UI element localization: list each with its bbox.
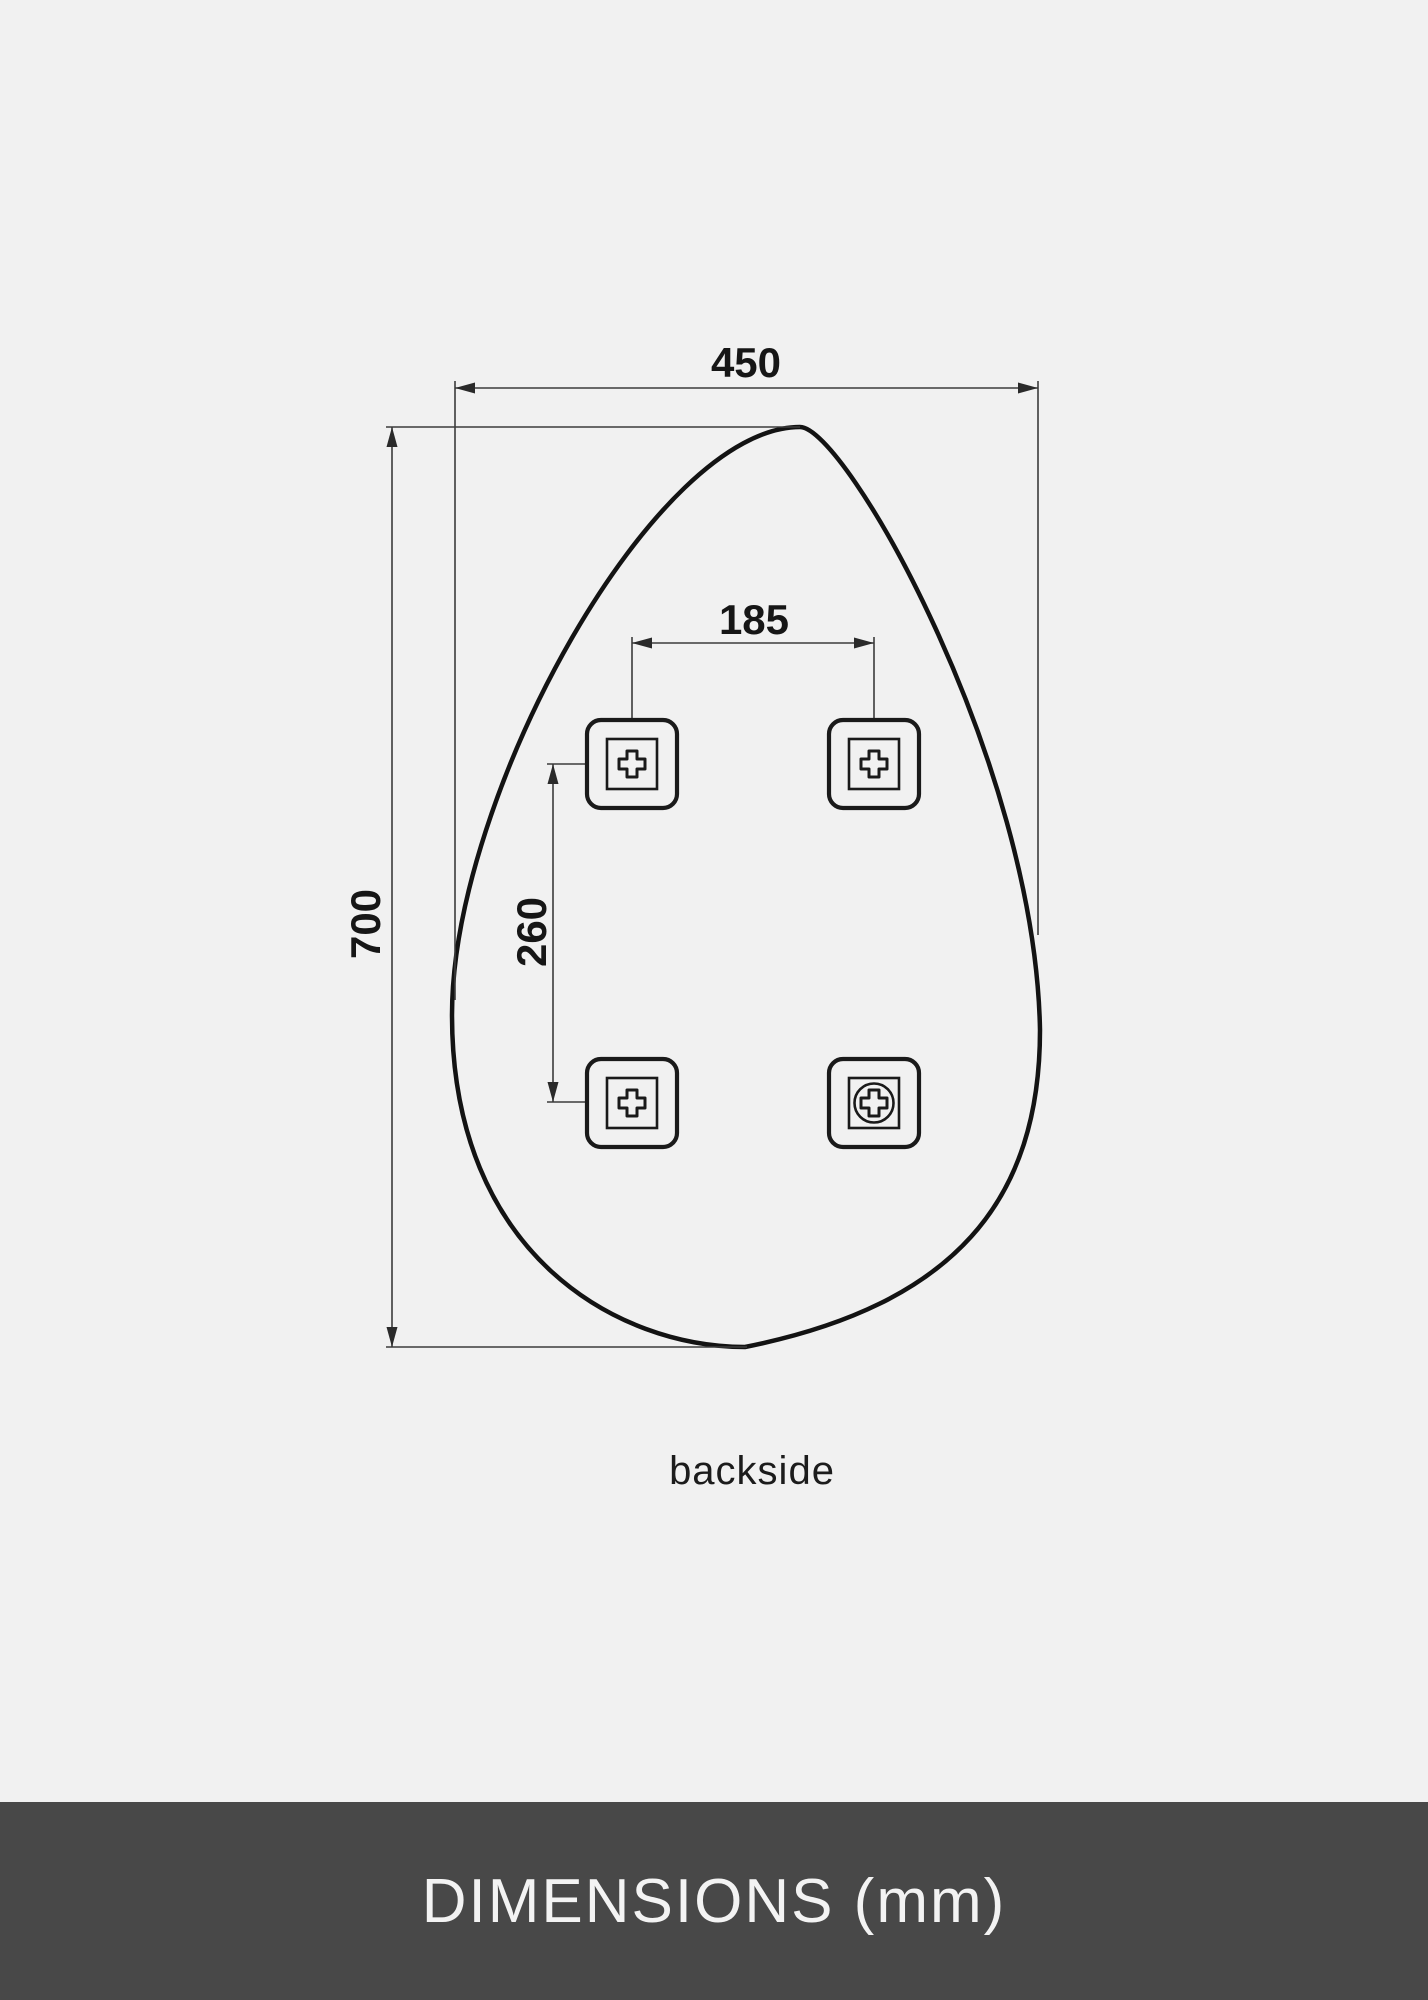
- dimensions-banner: DIMENSIONS (mm): [0, 1802, 1428, 2000]
- height-dimension-label: 700: [342, 889, 389, 959]
- dimensions-banner-title: DIMENSIONS (mm): [422, 1866, 1007, 1937]
- mounting-bracket-top-left: [587, 720, 677, 808]
- height-dimension: 700: [342, 427, 800, 1347]
- mounting-bracket-bottom-right: [829, 1059, 919, 1147]
- bracket-outer-frame: [587, 720, 677, 808]
- bracket-outer-frame: [829, 720, 919, 808]
- bracket-spacing-horizontal-dimension: 185: [632, 596, 874, 718]
- mirror-outline: [452, 427, 1040, 1347]
- mounting-bracket-bottom-left: [587, 1059, 677, 1147]
- width-dimension-label: 450: [711, 339, 781, 386]
- bracket-outer-frame: [829, 1059, 919, 1147]
- caption-backside: backside: [669, 1449, 835, 1493]
- spacing-h-dimension-label: 185: [719, 596, 789, 643]
- spacing-v-dimension-label: 260: [508, 897, 555, 967]
- bracket-spacing-vertical-dimension: 260: [508, 764, 586, 1102]
- mounting-brackets: [587, 720, 919, 1147]
- dimension-diagram: 450 700 185 260: [0, 0, 1428, 1802]
- mounting-bracket-top-right: [829, 720, 919, 808]
- bracket-outer-frame: [587, 1059, 677, 1147]
- dimension-drawing-page: 450 700 185 260: [0, 0, 1428, 2000]
